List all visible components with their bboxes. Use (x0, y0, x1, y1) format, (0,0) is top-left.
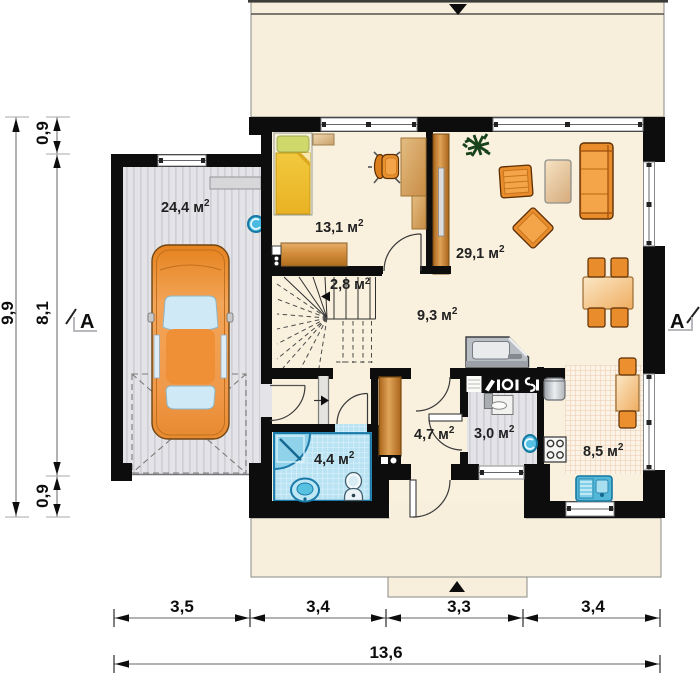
svg-text:9,3 м2: 9,3 м2 (417, 306, 458, 324)
svg-text:A: A (670, 311, 684, 333)
svg-text:4,7 м2: 4,7 м2 (414, 425, 455, 443)
svg-text:3,4: 3,4 (306, 597, 330, 616)
svg-text:24,4 м2: 24,4 м2 (161, 198, 210, 216)
svg-text:2,8 м2: 2,8 м2 (330, 276, 370, 293)
svg-text:29,1 м2: 29,1 м2 (456, 244, 505, 262)
svg-text:3,4: 3,4 (581, 597, 605, 616)
svg-text:13,6: 13,6 (369, 643, 402, 662)
svg-text:0,9: 0,9 (33, 121, 52, 145)
svg-text:3,5: 3,5 (170, 597, 194, 616)
svg-text:4,4 м2: 4,4 м2 (314, 450, 355, 468)
svg-text:9,9: 9,9 (0, 301, 17, 325)
svg-text:3,3: 3,3 (447, 597, 471, 616)
svg-text:8,5 м2: 8,5 м2 (583, 442, 624, 460)
svg-text:0,9: 0,9 (33, 484, 52, 508)
svg-text:3,0 м2: 3,0 м2 (474, 424, 515, 442)
svg-text:A: A (80, 311, 94, 333)
svg-text:8,1: 8,1 (33, 301, 52, 325)
svg-text:13,1 м2: 13,1 м2 (315, 218, 364, 236)
